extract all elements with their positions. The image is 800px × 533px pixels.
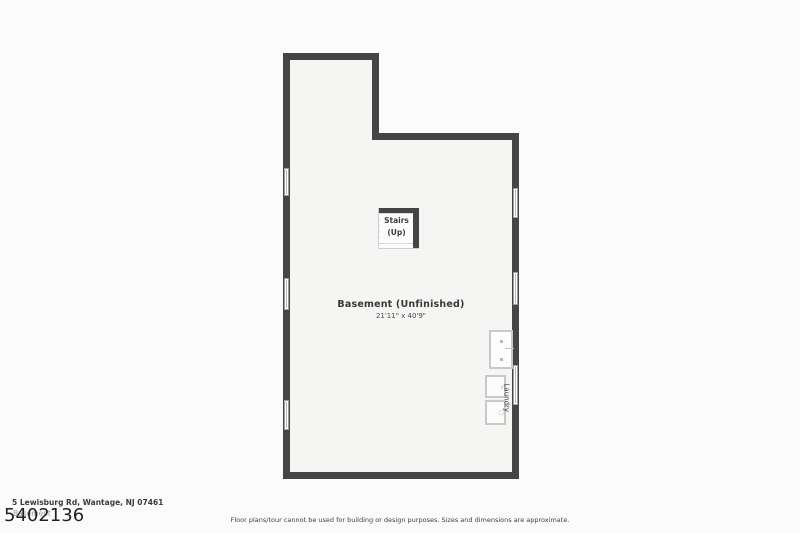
cabinet-knob-icon <box>500 340 503 343</box>
window-marker-right-3 <box>513 365 518 405</box>
utility-cabinet <box>489 330 513 369</box>
listing-number: 5402136 <box>4 505 84 527</box>
wall-right <box>512 133 519 479</box>
wall-bottom <box>283 472 519 479</box>
laundry-label: Laundry <box>502 384 511 412</box>
stairs-label-line1: Stairs <box>380 215 413 227</box>
wall-notch-vertical <box>372 53 379 140</box>
cabinet-wall-connector <box>505 348 514 349</box>
room-name: Basement (Unfinished) <box>290 299 512 310</box>
window-marker-right-2 <box>513 272 518 305</box>
wall-top <box>283 53 379 60</box>
window-marker-left-1 <box>284 168 289 196</box>
disclaimer-text: Floor plans/tour cannot be used for buil… <box>0 516 800 524</box>
stairs-label: Stairs (Up) <box>380 215 413 238</box>
window-marker-right-1 <box>513 188 518 218</box>
stairs-box: Stairs (Up) <box>378 208 419 249</box>
window-marker-left-2 <box>284 278 289 310</box>
cabinet-knob-icon <box>500 358 503 361</box>
stairs-wall-right <box>413 208 419 248</box>
floor-plan-page: Stairs (Up) Basement (Unfinished) 21'11"… <box>0 0 800 533</box>
room-label-block: Basement (Unfinished) 21'11" x 40'9" <box>290 299 512 320</box>
stairs-label-line2: (Up) <box>380 227 413 239</box>
room-dimensions: 21'11" x 40'9" <box>290 312 512 320</box>
wall-notch-horizontal <box>372 133 519 140</box>
window-marker-left-3 <box>284 400 289 430</box>
